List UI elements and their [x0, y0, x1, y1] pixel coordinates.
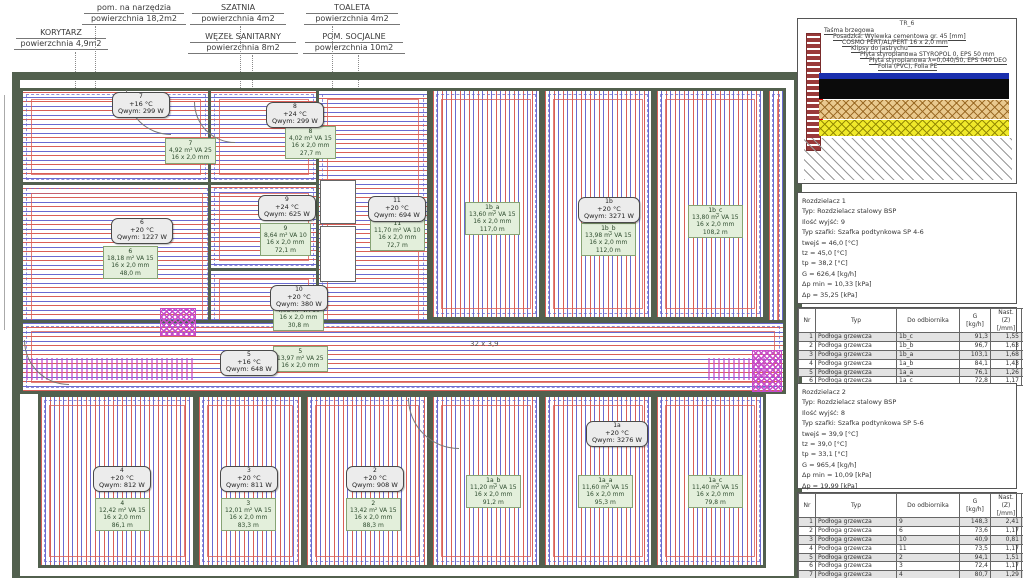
table-cell: 96,7: [960, 342, 991, 351]
loop-detail-line: 30,8 m: [277, 322, 320, 329]
loop-info-box: 74,92 m² VA 2516 x 2,0 mm: [165, 138, 216, 164]
loop-id: 2: [350, 500, 397, 507]
loop-info-box: 84,02 m² VA 1516 x 2,0 mm27,7 m: [285, 126, 336, 159]
loop-detail-line: 16 x 2,0 mm: [582, 491, 629, 498]
loop-info-box: 1b_c13,80 m² VA 1516 x 2,0 mm108,2 m: [688, 205, 743, 238]
table-cell: 2: [897, 553, 960, 562]
manifold-info-line: twejś = 46,0 [°C]: [802, 238, 1012, 248]
callout-area: powierzchnia 10m2: [305, 43, 403, 53]
loop-detail-line: 83,3 m: [225, 522, 272, 529]
loop-info-box: 1a_b11,20 m² VA 1516 x 2,0 mm91,2 m: [466, 475, 521, 508]
table-cell: 1b_c: [897, 333, 960, 342]
drawing-canvas: KORYTARZpowierzchnia 4,9m2pom. na narzęd…: [0, 0, 1023, 578]
manifold-info-line: tp = 33,1 [°C]: [802, 449, 1012, 459]
loop-id: 5: [277, 348, 324, 355]
table-cell: 3: [897, 562, 960, 571]
table-header-cell: Nast. (Z) [/mm]: [991, 309, 1022, 333]
table-cell: 2: [799, 342, 816, 351]
loop-detail-line: 16 x 2,0 mm: [169, 154, 212, 161]
table-cell: 1,17: [991, 527, 1022, 536]
loop-id: 8: [289, 128, 332, 135]
callout-area: powierzchnia 4m2: [306, 14, 398, 24]
table-cell: 4: [799, 359, 816, 368]
table-cell: 1: [799, 333, 816, 342]
callout-area: powierzchnia 4,9m2: [16, 39, 106, 49]
manifold-info-line: tz = 39,0 [°C]: [802, 439, 1012, 449]
room-power: Qwym: 648 W: [226, 366, 272, 373]
table-cell: 91,3: [960, 333, 991, 342]
dimension-line: [4, 95, 5, 330]
table-cell: 1,51: [991, 553, 1022, 562]
room-power: Qwym: 1227 W: [117, 234, 167, 241]
table-cell: 1,55: [991, 333, 1022, 342]
table-cell: 1b_a: [897, 350, 960, 359]
loop-detail-line: 16 x 2,0 mm: [470, 491, 517, 498]
corridor-area: [20, 320, 786, 394]
loop-detail-line: 11,60 m² VA 15: [582, 484, 629, 491]
loop-detail-line: 95,3 m: [582, 499, 629, 506]
table-cell: 7: [799, 571, 816, 578]
table-cell: Podłoga grzewcza: [816, 342, 897, 351]
room-power: Qwym: 625 W: [264, 211, 310, 218]
manifold-info-line: Δp min = 10,09 [kPa]: [802, 470, 1012, 480]
callout-title: KORYTARZ: [16, 28, 106, 39]
loop-id: 4: [99, 500, 146, 507]
manifold-info-line: tp = 38,2 [°C]: [802, 258, 1012, 268]
table-cell: 1,17: [991, 562, 1022, 571]
table-cell: 4: [897, 571, 960, 578]
detail-title: TR_6: [798, 20, 1016, 27]
manifold-info-line: G = 626,4 [kg/h]: [802, 269, 1012, 279]
table-header-cell: Nr: [799, 494, 816, 518]
room-label: 3+20 °CQwym: 811 W: [220, 466, 278, 492]
table-cell: 2: [799, 527, 816, 536]
table-cell: 148,3: [960, 518, 991, 527]
table-cell: 9: [897, 518, 960, 527]
loop-detail-line: 16 x 2,0 mm: [585, 239, 632, 246]
loop-info-box: 1111,70 m² VA 1016 x 2,0 mm72,7 m: [370, 218, 425, 251]
loop-id: 7: [169, 140, 212, 147]
detail-layer-label: Folia (PVC), Folia PE: [878, 64, 937, 71]
table-cell: 5: [799, 553, 816, 562]
room-label: 5+16 °CQwym: 648 W: [220, 350, 278, 376]
room-label: 1a+20 °CQwym: 3276 W: [586, 421, 648, 447]
loop-id: 1b_a: [469, 204, 516, 211]
room-callout: TOALETApowierzchnia 4m2: [304, 3, 400, 25]
room-label: 11+20 °CQwym: 694 W: [368, 196, 426, 222]
table-cell: 4: [799, 544, 816, 553]
corridor-dimension: 32 x 3,9: [470, 340, 499, 348]
manifold-1-info: Rozdzielacz 1Typ: Rozdzielacz stalowy BS…: [797, 192, 1017, 304]
callout-area: powierzchnia 4m2: [192, 14, 284, 24]
room-power: Qwym: 694 W: [374, 212, 420, 219]
table-cell: Podłoga grzewcza: [816, 544, 897, 553]
table-cell: 1,29: [991, 571, 1022, 578]
manifold-info-line: Typ szafki: Szafka podtynkowa SP 5-6: [802, 418, 1012, 428]
loop-id: 3: [225, 500, 272, 507]
manifold-info-line: G = 965,4 [kg/h]: [802, 460, 1012, 470]
manifold-info-line: Ilość wyjść: 9: [802, 217, 1012, 227]
table-cell: 6: [799, 562, 816, 571]
manifold-info-line: Δp = 19,99 [kPa]: [802, 481, 1012, 491]
table-cell: 1,68: [991, 350, 1022, 359]
table-cell: 2,41: [991, 518, 1022, 527]
manifold-info-line: Typ: Rozdzielacz stalowy BSP: [802, 206, 1012, 216]
table-cell: 40,9: [960, 535, 991, 544]
loop-detail-line: 11,70 m² VA 10: [374, 227, 421, 234]
loop-id: 1a_b: [470, 477, 517, 484]
table-cell: Podłoga grzewcza: [816, 518, 897, 527]
room-power: Qwym: 811 W: [226, 482, 272, 489]
callout-title: SZATNIA: [192, 3, 284, 14]
manifold-info-line: Typ szafki: Szafka podtynkowa SP 4-6: [802, 227, 1012, 237]
table-cell: 5: [799, 368, 816, 377]
room-callout: WĘZEŁ SANITARNYpowierzchnia 8m2: [188, 32, 298, 54]
table-header-cell: G [kg/h]: [960, 309, 991, 333]
room-label: 6+20 °CQwym: 1227 W: [111, 218, 173, 244]
loop-detail-line: 16 x 2,0 mm: [289, 142, 332, 149]
table-cell: 1,43: [991, 359, 1022, 368]
room-label: 7+16 °CQwym: 299 W: [112, 92, 170, 118]
table-cell: 1a_b: [897, 359, 960, 368]
table-row: 2Podłoga grzewcza1b_b96,71,630,78: [799, 342, 1023, 351]
loop-detail-line: 91,2 m: [470, 499, 517, 506]
loop-detail-line: 8,64 m² VA 10: [264, 232, 307, 239]
loop-detail-line: 13,60 m² VA 15: [469, 211, 516, 218]
manifold-2-table: NrTypDo odbiornikaG [kg/h]Nast. (Z) [/mm…: [798, 493, 1023, 578]
table-header-cell: Do odbiornika: [897, 494, 960, 518]
table-cell: 84,1: [960, 359, 991, 368]
table-cell: 1,63: [991, 342, 1022, 351]
room-label: 9+24 °CQwym: 625 W: [258, 195, 316, 221]
manifold-2-info: Rozdzielacz 2Typ: Rozdzielacz stalowy BS…: [797, 383, 1017, 489]
manifold-info-line: tz = 45,0 [°C]: [802, 248, 1012, 258]
table-cell: 1,26: [991, 368, 1022, 377]
table-row: 4Podłoga grzewcza1173,51,170,45: [799, 544, 1023, 553]
right-panel: TR_6 Taśma brzegowaPosadzka: Wylewka cem…: [795, 16, 1021, 576]
room-callout: pom. na narzędziapowierzchnia 18,2m2: [82, 3, 186, 25]
loop-detail-line: 4,92 m² VA 25: [169, 147, 212, 154]
loop-detail-line: 79,8 m: [692, 499, 739, 506]
loop-detail-line: 11,40 m² VA 15: [692, 484, 739, 491]
loop-detail-line: 16 x 2,0 mm: [264, 239, 307, 246]
room-label: 10+20 °CQwym: 380 W: [270, 285, 328, 311]
loop-info-box: 1b_a13,60 m² VA 1516 x 2,0 mm117,0 m: [465, 202, 520, 235]
loop-detail-line: 16 x 2,0 mm: [469, 218, 516, 225]
loop-detail-line: 16 x 2,0 mm: [692, 221, 739, 228]
loop-detail-line: 16 x 2,0 mm: [350, 514, 397, 521]
layer-screed: [819, 79, 1009, 99]
manifold-2-table-box: NrTypDo odbiornikaG [kg/h]Nast. (Z) [/mm…: [797, 492, 1017, 576]
room-label: 8+24 °CQwym: 299 W: [266, 102, 324, 128]
table-cell: 1,17: [991, 544, 1022, 553]
table-cell: 10: [897, 535, 960, 544]
manifold-info-line: Typ: Rozdzielacz stalowy BSP: [802, 397, 1012, 407]
loop-id: 1a_c: [692, 477, 739, 484]
floor-section-detail: TR_6 Taśma brzegowaPosadzka: Wylewka cem…: [797, 18, 1017, 184]
manifold-info-line: twejś = 39,9 [°C]: [802, 429, 1012, 439]
layer-insulation-bottom: [819, 120, 1009, 136]
table-cell: 3: [799, 350, 816, 359]
manifold-1-symbol: [160, 308, 196, 336]
loop-id: 1a_a: [582, 477, 629, 484]
loop-detail-line: 13,80 m² VA 15: [692, 214, 739, 221]
table-header-cell: Nast. (Z) [/mm]: [991, 494, 1022, 518]
room-label: 2+20 °CQwym: 908 W: [346, 466, 404, 492]
table-cell: 94,1: [960, 553, 991, 562]
loop-info-box: 1a_c11,40 m² VA 1516 x 2,0 mm79,8 m: [688, 475, 743, 508]
table-cell: 80,7: [960, 571, 991, 578]
loop-detail-line: 16 x 2,0 mm: [99, 514, 146, 521]
table-cell: 1: [799, 518, 816, 527]
loop-info-box: 312,01 m² VA 1516 x 2,0 mm83,3 m: [221, 498, 276, 531]
room-power: Qwym: 299 W: [272, 118, 318, 125]
table-cell: 0,81: [991, 535, 1022, 544]
loop-id: 1b_b: [585, 225, 632, 232]
callout-area: powierzchnia 18,2m2: [84, 14, 184, 24]
loop-info-box: 412,42 m² VA 1516 x 2,0 mm86,1 m: [95, 498, 150, 531]
loop-detail-line: 13,98 m² VA 15: [585, 232, 632, 239]
table-header-cell: Typ: [816, 309, 897, 333]
loop-detail-line: 16 x 2,0 mm: [374, 234, 421, 241]
callout-title: pom. na narzędzia: [84, 3, 184, 14]
loop-detail-line: 72,1 m: [264, 247, 307, 254]
manifold-info-line: Ilość wyjść: 8: [802, 408, 1012, 418]
room-callout: POM. SOCJALNEpowierzchnia 10m2: [303, 32, 405, 54]
table-cell: 1a_a: [897, 368, 960, 377]
manifold-info-line: Δp min = 10,33 [kPa]: [802, 279, 1012, 289]
callout-area: powierzchnia 8m2: [190, 43, 296, 53]
table-cell: 6: [897, 527, 960, 536]
loop-detail-line: 72,7 m: [374, 242, 421, 249]
room-power: Qwym: 3271 W: [584, 213, 634, 220]
room-power: Qwym: 812 W: [99, 482, 145, 489]
table-cell: Podłoga grzewcza: [816, 333, 897, 342]
table-cell: 3: [799, 535, 816, 544]
loop-info-box: 513,97 m² VA 2516 x 2,0 mm: [273, 346, 328, 372]
table-row: 7Podłoga grzewcza480,71,290,57: [799, 571, 1023, 578]
room-power: Qwym: 299 W: [118, 108, 164, 115]
table-header-cell: Nr: [799, 309, 816, 333]
loop-detail-line: 108,2 m: [692, 229, 739, 236]
manifold-1-table-box: NrTypDo odbiornikaG [kg/h]Nast. (Z) [/mm…: [797, 307, 1017, 377]
table-row: 1Podłoga grzewcza1b_c91,31,550,69: [799, 333, 1023, 342]
room-power: Qwym: 908 W: [352, 482, 398, 489]
table-cell: 76,1: [960, 368, 991, 377]
table-row: 3Podłoga grzewcza1b_a103,11,680,87: [799, 350, 1023, 359]
loop-info-box: 1b_b13,98 m² VA 1516 x 2,0 mm112,0 m: [581, 223, 636, 256]
loop-detail-line: 112,0 m: [585, 247, 632, 254]
room-power: Qwym: 3276 W: [592, 437, 642, 444]
table-header-cell: Do odbiornika: [897, 309, 960, 333]
loop-detail-line: 11,20 m² VA 15: [470, 484, 517, 491]
loop-detail-line: 88,3 m: [350, 522, 397, 529]
loop-detail-line: 13,42 m² VA 15: [350, 507, 397, 514]
loop-detail-line: 16 x 2,0 mm: [225, 514, 272, 521]
table-cell: Podłoga grzewcza: [816, 359, 897, 368]
table-row: 5Podłoga grzewcza294,11,510,74: [799, 553, 1023, 562]
table-cell: 11: [897, 544, 960, 553]
table-row: 3Podłoga grzewcza1040,90,810,14: [799, 535, 1023, 544]
loop-detail-line: 16 x 2,0 mm: [277, 314, 320, 321]
pipe-bundle: [708, 358, 768, 380]
loop-detail-line: 86,1 m: [99, 522, 146, 529]
table-cell: Podłoga grzewcza: [816, 571, 897, 578]
loop-info-box: 618,18 m² VA 1516 x 2,0 mm48,0 m: [103, 246, 158, 279]
room-power: Qwym: 380 W: [276, 301, 322, 308]
table-cell: 73,5: [960, 544, 991, 553]
loop-detail-line: 16 x 2,0 mm: [692, 491, 739, 498]
shaft-box: [320, 180, 356, 224]
table-cell: Podłoga grzewcza: [816, 562, 897, 571]
table-cell: Podłoga grzewcza: [816, 535, 897, 544]
table-row: 5Podłoga grzewcza1a_a76,11,260,51: [799, 368, 1023, 377]
room-callout: KORYTARZpowierzchnia 4,9m2: [14, 28, 108, 50]
room-area-1b-c: [654, 88, 766, 320]
table-cell: 73,6: [960, 527, 991, 536]
loop-detail-line: 12,01 m² VA 15: [225, 507, 272, 514]
loop-info-box: 1a_a11,60 m² VA 1516 x 2,0 mm95,3 m: [578, 475, 633, 508]
manifold-1-table: NrTypDo odbiornikaG [kg/h]Nast. (Z) [/mm…: [798, 308, 1023, 386]
table-cell: Podłoga grzewcza: [816, 527, 897, 536]
loop-detail-line: 13,97 m² VA 25: [277, 355, 324, 362]
table-header-cell: G [kg/h]: [960, 494, 991, 518]
loop-detail-line: 16 x 2,0 mm: [277, 362, 324, 369]
callout-title: TOALETA: [306, 3, 398, 14]
callout-title: POM. SOCJALNE: [305, 32, 403, 43]
table-cell: Podłoga grzewcza: [816, 350, 897, 359]
table-row: 6Podłoga grzewcza372,41,170,44: [799, 562, 1023, 571]
table-cell: Podłoga grzewcza: [816, 553, 897, 562]
loop-detail-line: 16 x 2,0 mm: [107, 262, 154, 269]
table-cell: Podłoga grzewcza: [816, 368, 897, 377]
table-header-cell: Typ: [816, 494, 897, 518]
loop-detail-line: 12,42 m² VA 15: [99, 507, 146, 514]
floor-plan: 32 x 3,9 7+16 °CQwym: 299 W8+24 °CQwym: …: [8, 58, 792, 572]
manifold-info-line: Rozdzielacz 1: [802, 196, 1012, 206]
loop-info-box: 213,42 m² VA 1516 x 2,0 mm88,3 m: [346, 498, 401, 531]
loop-detail-line: 18,18 m² VA 15: [107, 255, 154, 262]
table-row: 1Podłoga grzewcza9148,32,411,84: [799, 518, 1023, 527]
room-label: 4+20 °CQwym: 812 W: [93, 466, 151, 492]
room-callout: SZATNIApowierzchnia 4m2: [190, 3, 286, 25]
table-cell: 72,4: [960, 562, 991, 571]
table-cell: 103,1: [960, 350, 991, 359]
loop-detail-line: 48,0 m: [107, 270, 154, 277]
layer-insulation-top: [819, 100, 1009, 119]
loop-id: 9: [264, 225, 307, 232]
loop-id: 1b_c: [692, 207, 739, 214]
room-label: 1b+20 °CQwym: 3271 W: [578, 197, 640, 223]
loop-detail-line: 117,0 m: [469, 226, 516, 233]
shaft-box: [320, 226, 356, 282]
loop-id: 6: [107, 248, 154, 255]
manifold-info-line: Δp = 35,25 [kPa]: [802, 290, 1012, 300]
manifold-info-line: Rozdzielacz 2: [802, 387, 1012, 397]
loop-detail-line: 4,02 m² VA 15: [289, 135, 332, 142]
loop-info-box: 98,64 m² VA 1016 x 2,0 mm72,1 m: [260, 223, 311, 256]
layer-subgrade-hatch: [804, 138, 1012, 180]
table-cell: 1b_b: [897, 342, 960, 351]
table-row: 4Podłoga grzewcza1a_b84,11,430,58: [799, 359, 1023, 368]
table-row: 2Podłoga grzewcza673,61,170,45: [799, 527, 1023, 536]
callout-title: WĘZEŁ SANITARNY: [190, 32, 296, 43]
loop-detail-line: 27,7 m: [289, 150, 332, 157]
